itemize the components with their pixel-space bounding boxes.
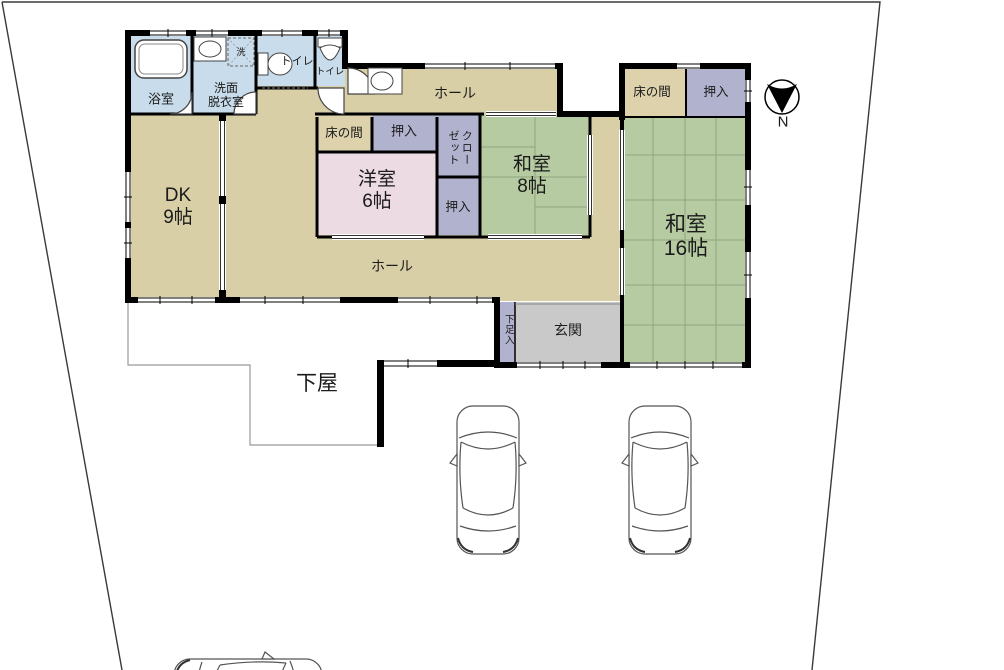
corridor-east <box>590 115 622 237</box>
compass-north-icon <box>765 80 799 114</box>
room-label-toilet-2: トイレ <box>316 68 345 79</box>
room-label-shoe-cabinet: 下足入 <box>502 308 513 352</box>
compass-label: N <box>778 113 789 130</box>
porch-wall <box>377 360 500 367</box>
room-hall-lower <box>222 235 622 301</box>
car-icon <box>450 406 526 554</box>
pent-roof-outline <box>128 303 377 445</box>
porch-wall-vertical <box>377 363 384 447</box>
room-label-western: 洋室 6帖 <box>358 169 396 213</box>
room-label-tokonoma-east: 床の間 <box>633 85 671 99</box>
porch-window <box>384 359 437 368</box>
room-label-closet: クローゼット <box>446 127 472 169</box>
room-label-tokonoma-west: 床の間 <box>325 126 363 140</box>
room-label-entrance: 玄関 <box>554 322 582 338</box>
room-label-bath: 浴室 <box>148 93 174 108</box>
room-label-washroom: 洗面 脱衣室 <box>208 82 244 110</box>
pent-roof-label: 下屋 <box>296 372 338 396</box>
room-label-japanese-16: 和室 16帖 <box>664 213 708 261</box>
room-label-dk: DK 9帖 <box>163 185 193 229</box>
car-icon <box>174 652 322 670</box>
floorplan: 浴室 洗面 脱衣室 洗 トイレ トイレ ホール 床の間 押入 和室 16帖 DK… <box>0 0 1004 670</box>
corridor-utility <box>256 86 345 116</box>
washer-label: 洗 <box>236 47 245 57</box>
room-label-japanese-8: 和室 8帖 <box>513 154 551 198</box>
room-label-toilet-1: トイレ <box>281 56 314 69</box>
room-label-oshiire-center: 押入 <box>445 200 470 214</box>
room-label-hall-lower: ホール <box>371 258 413 274</box>
room-label-oshiire-east: 押入 <box>703 85 728 99</box>
car-icon <box>622 406 698 554</box>
room-label-hall-upper: ホール <box>434 85 476 101</box>
room-label-oshiire-west: 押入 <box>391 125 417 140</box>
room-toilet-2 <box>315 35 345 88</box>
